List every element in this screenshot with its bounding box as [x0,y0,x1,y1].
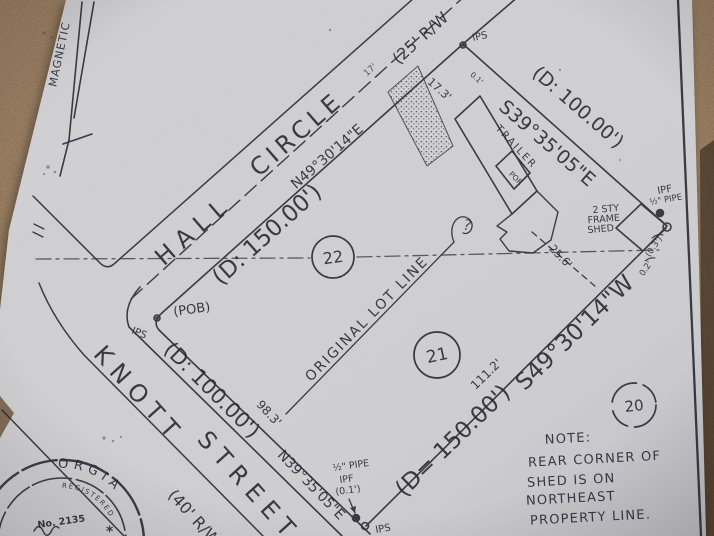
photo-of-survey-plat: MAGNETIC HALL CIRCLE N49°30'14"E (D: 150… [0,0,714,536]
photo-vignette [0,0,714,536]
survey-plat-drawing: MAGNETIC HALL CIRCLE N49°30'14"E (D: 150… [0,0,714,536]
